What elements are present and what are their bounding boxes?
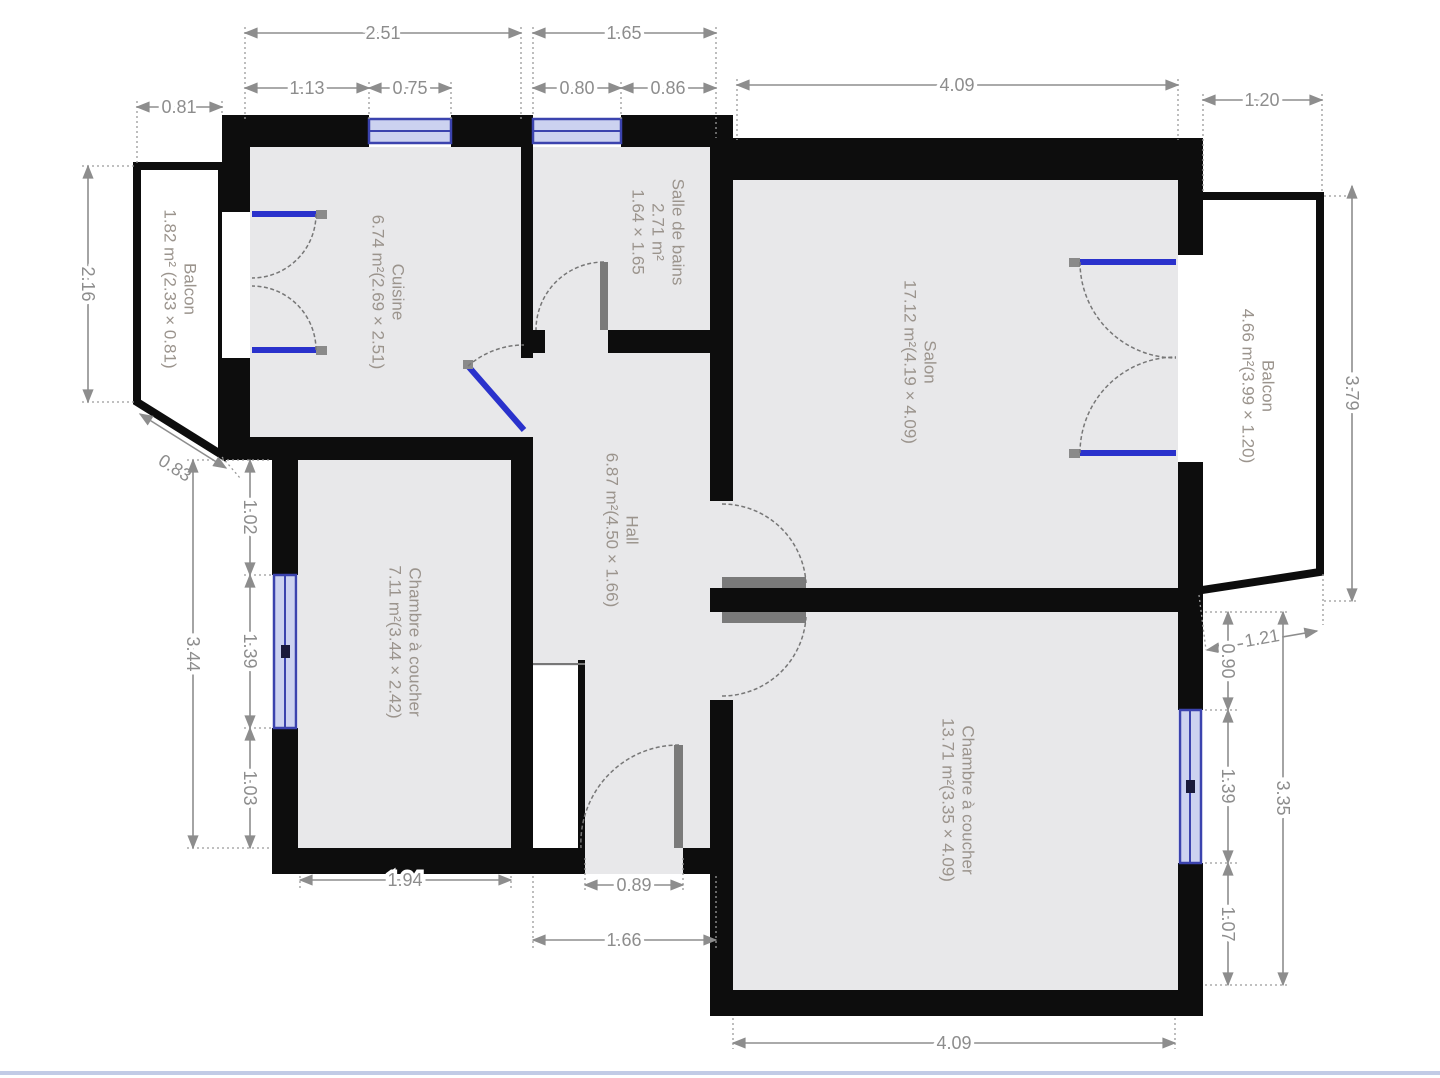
window-cuisine: [369, 119, 451, 143]
wall-segment: [1178, 138, 1203, 255]
svg-text:2.51: 2.51: [365, 23, 400, 43]
svg-text:Salle de bains: Salle de bains: [669, 179, 688, 286]
svg-text:0.90: 0.90: [1218, 643, 1238, 678]
dim-4-09-top: 4.09: [737, 75, 1178, 95]
svg-text:Balcon: Balcon: [1259, 360, 1278, 412]
svg-text:0.75: 0.75: [392, 78, 427, 98]
wall-segment: [1178, 462, 1203, 593]
floor-plan-page: 2.51 1.65 1.13 0.75 0.80 0.86 4.09 1.20 …: [0, 0, 1440, 1078]
svg-text:0.81: 0.81: [161, 97, 196, 117]
svg-text:4.66 m²(3.99 × 1.20): 4.66 m²(3.99 × 1.20): [1239, 309, 1258, 464]
dim-2-51: 2.51: [245, 23, 521, 43]
window-chambre-1: [274, 575, 296, 728]
svg-text:7.11 m²(3.44 × 2.42): 7.11 m²(3.44 × 2.42): [386, 565, 405, 718]
floor-plan: 2.51 1.65 1.13 0.75 0.80 0.86 4.09 1.20 …: [0, 0, 1440, 1078]
svg-text:6.87 m²(4.50 × 1.66): 6.87 m²(4.50 × 1.66): [603, 453, 622, 608]
svg-text:Hall: Hall: [623, 515, 642, 544]
svg-text:3.35: 3.35: [1273, 780, 1293, 815]
svg-text:3.44: 3.44: [183, 636, 203, 671]
dim-3-44: 3.44: [183, 460, 203, 848]
svg-text:1.02: 1.02: [240, 499, 260, 534]
svg-text:1.94: 1.94: [387, 870, 422, 890]
svg-text:1.39: 1.39: [240, 633, 260, 668]
svg-text:13.71 m²(3.35 × 4.09): 13.71 m²(3.35 × 4.09): [939, 718, 958, 882]
wall-segment: [1178, 612, 1203, 710]
wall-segment: [733, 588, 1203, 612]
svg-text:2.16: 2.16: [78, 266, 98, 301]
dim-0-90: 0.90: [1218, 612, 1238, 710]
dim-1-02: 1.02: [240, 460, 260, 575]
dim-2-16: 2.16: [78, 166, 98, 402]
wall-segment: [521, 330, 545, 353]
wall-segment: [222, 437, 533, 460]
wall-segment: [222, 115, 250, 212]
wall-segment: [451, 115, 533, 147]
dim-3-79: 3.79: [1342, 186, 1362, 601]
svg-text:1.82 m² (2.33 × 0.81): 1.82 m² (2.33 × 0.81): [161, 209, 180, 368]
window-chambre-2: [1180, 710, 1201, 863]
wall-segment: [710, 700, 733, 1016]
dim-1-20: 1.20: [1203, 90, 1322, 110]
shaft-niche: [533, 664, 585, 848]
svg-text:Chambre à coucher: Chambre à coucher: [959, 725, 978, 875]
svg-text:1.21: 1.21: [1243, 625, 1281, 651]
svg-text:Chambre à coucher: Chambre à coucher: [406, 567, 425, 717]
room-label-chambre-2: Chambre à coucher 13.71 m²(3.35 × 4.09): [939, 718, 978, 882]
svg-text:0.80: 0.80: [559, 78, 594, 98]
dim-1-39-right: 1.39: [1218, 710, 1238, 863]
wall-segment: [272, 452, 298, 575]
wall-segment: [521, 147, 533, 358]
room-label-chambre-1: Chambre à coucher 7.11 m²(3.44 × 2.42): [386, 565, 425, 718]
dim-0-75: 0.75: [369, 78, 451, 98]
dim-1-07: 1.07: [1218, 863, 1238, 985]
svg-text:4.09: 4.09: [936, 1033, 971, 1053]
viewer-bottom-border: [0, 1071, 1440, 1075]
wall-segment: [511, 437, 533, 874]
svg-text:1.66: 1.66: [606, 930, 641, 950]
wall-segment: [710, 115, 733, 501]
svg-text:2.71 m²: 2.71 m²: [649, 203, 668, 261]
svg-text:1.39: 1.39: [1218, 768, 1238, 803]
window-salle-de-bains: [533, 119, 621, 143]
svg-text:0.83: 0.83: [155, 450, 195, 486]
wall-segment: [1178, 863, 1203, 1016]
wall-segment: [272, 848, 585, 874]
wall-segment: [710, 990, 1203, 1016]
svg-text:Salon: Salon: [921, 340, 940, 383]
dim-1-03: 1.03: [240, 728, 260, 848]
dim-1-39-left: 1.39: [240, 575, 260, 728]
svg-text:1.65: 1.65: [606, 23, 641, 43]
dim-0-86: 0.86: [621, 78, 716, 98]
svg-text:1.64 × 1.65: 1.64 × 1.65: [629, 189, 648, 275]
svg-text:1.13: 1.13: [289, 78, 324, 98]
svg-text:Cuisine: Cuisine: [389, 264, 408, 321]
svg-text:Balcon: Balcon: [181, 263, 200, 315]
dim-0-80: 0.80: [533, 78, 621, 98]
svg-text:1.07: 1.07: [1218, 906, 1238, 941]
dim-1-66: 1.66: [533, 930, 716, 950]
svg-text:1.03: 1.03: [240, 770, 260, 805]
dim-1-65: 1.65: [533, 23, 716, 43]
svg-text:0.86: 0.86: [650, 78, 685, 98]
dim-0-89: 0.89: [585, 875, 683, 895]
wall-segment: [710, 588, 733, 612]
dim-4-09-bottom: 4.09: [733, 1033, 1175, 1053]
svg-text:4.09: 4.09: [939, 75, 974, 95]
dim-0-81: 0.81: [137, 97, 222, 117]
svg-text:0.89: 0.89: [616, 875, 651, 895]
svg-text:6.74 m²(2.69 × 2.51): 6.74 m²(2.69 × 2.51): [369, 215, 388, 370]
dim-3-35: 3.35: [1273, 612, 1293, 985]
svg-text:3.79: 3.79: [1342, 375, 1362, 410]
svg-text:17.12 m²(4.19 × 4.09): 17.12 m²(4.19 × 4.09): [901, 280, 920, 444]
floor-salon: [733, 180, 1178, 588]
svg-text:1.20: 1.20: [1244, 90, 1279, 110]
wall-segment: [716, 138, 1203, 180]
dim-1-13: 1.13: [245, 78, 369, 98]
